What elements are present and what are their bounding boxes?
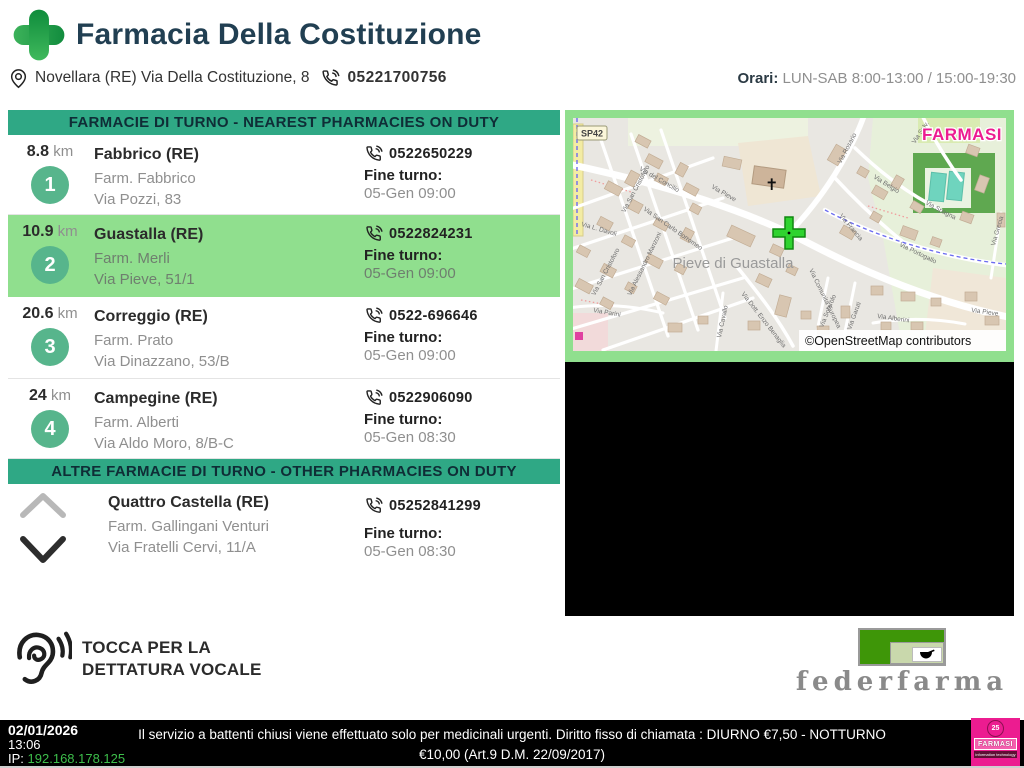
shift-end-label: Fine turno: xyxy=(364,329,556,346)
pharmacy-name: Farm. Alberti xyxy=(94,412,364,433)
pharmacy-phone-number: 0522-696646 xyxy=(389,308,478,324)
opening-hours: Orari: LUN-SAB 8:00-13:00 / 15:00-19:30 xyxy=(737,70,1016,87)
footer-time: 13:06 xyxy=(8,738,125,753)
rank-badge: 3 xyxy=(31,328,69,366)
phone-icon xyxy=(364,306,384,326)
pharmacy-name: Farm. Gallingani Venturi xyxy=(108,516,364,537)
federfarma-wordmark: federfarma xyxy=(790,667,1014,697)
footer-date: 02/01/2026 xyxy=(8,723,125,738)
pharmacy-street: Via Pieve, 51/1 xyxy=(94,269,364,290)
map-place-label: Pieve di Guastalla xyxy=(673,255,795,272)
pharmacy-row-4[interactable]: 24 km 4 Campegine (RE) Farm. Alberti Via… xyxy=(8,379,560,459)
shift-end-value: 05-Gen 09:00 xyxy=(364,185,556,202)
footer-ip: IP: 192.168.178.125 xyxy=(8,752,125,767)
pharmacies-panel: FARMACIE DI TURNO - NEAREST PHARMACIES O… xyxy=(8,110,560,568)
farmasi-25-badge: 25 xyxy=(987,720,1004,737)
shift-end-value: 05-Gen 09:00 xyxy=(364,265,556,282)
pharmacy-address: Novellara (RE) Via Della Costituzione, 8 xyxy=(35,69,310,87)
osm-map[interactable]: ✝ SP42 Pieve di Guastalla Via San Cristo… xyxy=(573,118,1006,351)
footer-notice-line1: Il servizio a battenti chiusi viene effe… xyxy=(132,725,892,745)
pharmacy-row-3[interactable]: 20.6 km 3 Correggio (RE) Farm. Prato Via… xyxy=(8,297,560,379)
distance: 10.9 km xyxy=(22,223,77,241)
ear-icon xyxy=(8,626,72,692)
app-header: Farmacia Della Costituzione xyxy=(10,6,482,64)
pharmacy-street: Via Aldo Moro, 8/B-C xyxy=(94,433,364,454)
pharmacy-name: Farm. Prato xyxy=(94,330,364,351)
scroll-up-button[interactable] xyxy=(20,492,66,518)
osm-attribution: ©OpenStreetMap contributors xyxy=(805,334,971,348)
hours-label: Orari: xyxy=(737,70,778,87)
rank-badge: 2 xyxy=(31,246,69,284)
mortar-icon xyxy=(919,649,935,660)
pharmacy-street: Via Pozzi, 83 xyxy=(94,189,364,210)
farmasi-brand: FARMASI xyxy=(974,738,1017,750)
pharmacy-phone-number: 0522906090 xyxy=(389,390,473,406)
phone-icon xyxy=(320,68,341,89)
page-title: Farmacia Della Costituzione xyxy=(76,18,482,52)
footer-notice: Il servizio a battenti chiusi viene effe… xyxy=(132,725,892,765)
nearest-banner: FARMACIE DI TURNO - NEAREST PHARMACIES O… xyxy=(8,110,560,135)
shift-end-label: Fine turno: xyxy=(364,247,556,264)
farmasi-map-logo: FARMASI xyxy=(922,125,1002,144)
pharmacy-cross-logo xyxy=(10,6,68,64)
footer-bar: 02/01/2026 13:06 IP: 192.168.178.125 Il … xyxy=(0,720,1024,766)
shift-end-label: Fine turno: xyxy=(364,411,556,428)
scroll-down-button[interactable] xyxy=(20,536,66,564)
phone-icon xyxy=(364,496,384,516)
chevron-down-icon xyxy=(20,536,66,564)
other-pharmacy-row[interactable]: Quattro Castella (RE) Farm. Gallingani V… xyxy=(8,484,560,568)
blank-display-area xyxy=(565,362,1014,616)
distance: 24 km xyxy=(29,387,71,405)
phone-icon xyxy=(364,224,384,244)
location-pin-icon xyxy=(8,68,29,89)
phone-icon xyxy=(364,388,384,408)
federfarma-logo: federfarma xyxy=(790,628,1014,697)
rank-badge: 1 xyxy=(31,166,69,204)
rank-badge: 4 xyxy=(31,410,69,448)
chevron-up-icon xyxy=(20,492,66,518)
pharmacy-city: Correggio (RE) xyxy=(94,308,364,326)
pharmacy-city: Fabbrico (RE) xyxy=(94,146,364,164)
farmasi-logo: 25 FARMASI information technology xyxy=(971,718,1020,766)
shift-end-label: Fine turno: xyxy=(364,167,556,184)
pharmacy-infobar: Novellara (RE) Via Della Costituzione, 8… xyxy=(8,64,1016,92)
pharmacy-name: Farm. Fabbrico xyxy=(94,168,364,189)
footer-ip-value: 192.168.178.125 xyxy=(28,751,126,766)
route-badge-label: SP42 xyxy=(581,129,603,139)
farmasi-tagline: information technology xyxy=(974,751,1017,758)
distance: 20.6 km xyxy=(22,305,77,323)
pharmacy-row-2-selected[interactable]: 10.9 km 2 Guastalla (RE) Farm. Merli Via… xyxy=(8,215,560,297)
map-container[interactable]: ✝ SP42 Pieve di Guastalla Via San Cristo… xyxy=(565,110,1014,362)
shift-end-value: 05-Gen 09:00 xyxy=(364,347,556,364)
pharmacy-street: Via Fratelli Cervi, 11/A xyxy=(108,537,364,558)
pharmacy-row-1[interactable]: 8.8 km 1 Fabbrico (RE) Farm. Fabbrico Vi… xyxy=(8,135,560,215)
voice-dictation-button[interactable]: TOCCA PER LA DETTATURA VOCALE xyxy=(8,626,261,692)
pharmacy-city: Guastalla (RE) xyxy=(94,226,364,244)
shift-end-value: 05-Gen 08:30 xyxy=(364,429,556,446)
pharmacy-city: Quattro Castella (RE) xyxy=(108,494,364,512)
pharmacy-city: Campegine (RE) xyxy=(94,390,364,408)
hours-value: LUN-SAB 8:00-13:00 / 15:00-19:30 xyxy=(783,70,1016,87)
distance: 8.8 km xyxy=(27,143,73,161)
church-symbol: ✝ xyxy=(765,177,778,194)
voice-line2: DETTATURA VOCALE xyxy=(82,659,261,681)
shift-end-value: 05-Gen 08:30 xyxy=(364,543,556,560)
federfarma-emblem xyxy=(858,628,946,666)
pharmacy-phone: 05221700756 xyxy=(348,69,447,87)
phone-icon xyxy=(364,144,384,164)
pharmacy-phone-number: 0522824231 xyxy=(389,226,473,242)
pharmacy-street: Via Dinazzano, 53/B xyxy=(94,351,364,372)
voice-line1: TOCCA PER LA xyxy=(82,637,261,659)
shift-end-label: Fine turno: xyxy=(364,525,556,542)
pharmacy-name: Farm. Merli xyxy=(94,248,364,269)
pharmacy-phone-number: 05252841299 xyxy=(389,498,481,514)
footer-notice-line2: €10,00 (Art.9 D.M. 22/09/2017) xyxy=(132,745,892,765)
other-banner: ALTRE FARMACIE DI TURNO - OTHER PHARMACI… xyxy=(8,459,560,484)
pharmacy-phone-number: 0522650229 xyxy=(389,146,473,162)
